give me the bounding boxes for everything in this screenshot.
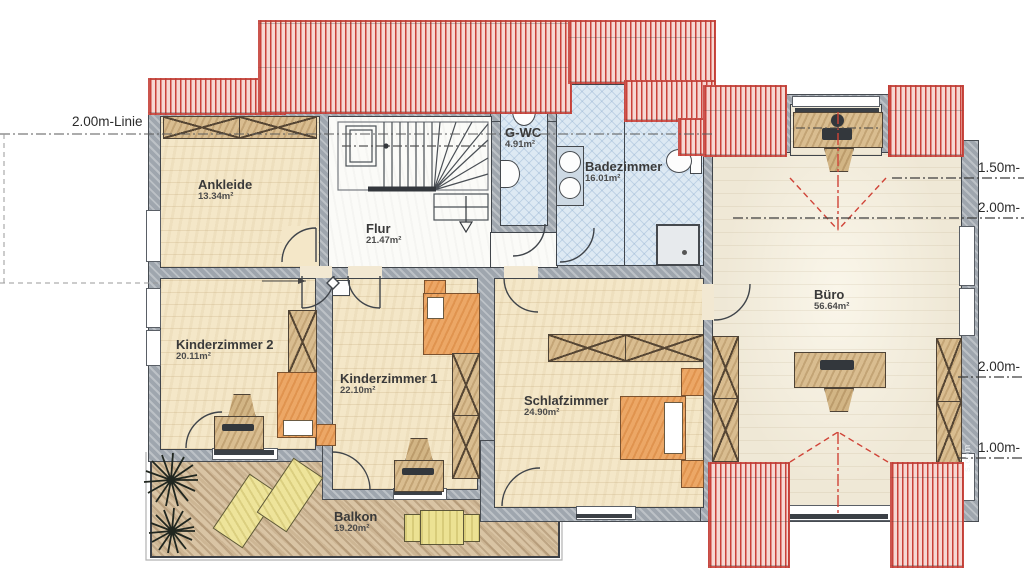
room-area: 20.11m² — [176, 352, 274, 362]
desk-buero-center — [794, 352, 886, 388]
room-buero — [712, 152, 962, 507]
room-name: Badezimmer — [585, 160, 662, 174]
computer-kinderzimmer2 — [222, 424, 254, 431]
window-buero-east-b — [959, 288, 975, 336]
roof-hatch-buero-nw — [703, 85, 787, 157]
room-label-kinderzimmer2: Kinderzimmer 2 20.11m² — [176, 338, 274, 362]
room-area: 22.10m² — [340, 386, 438, 396]
room-area: 4.91m² — [505, 140, 541, 150]
room-label-kinderzimmer1: Kinderzimmer 1 22.10m² — [340, 372, 438, 396]
wardrobe-schlafzimmer-b — [625, 334, 704, 362]
roof-hatch-north-center — [258, 20, 572, 114]
door-gap-buero — [702, 284, 714, 320]
window-dormer — [792, 96, 880, 107]
dimension-label-100m: 1.00m- — [978, 440, 1024, 455]
room-label-balkon: Balkon 19.20m² — [334, 510, 377, 534]
room-name: Kinderzimmer 1 — [340, 372, 438, 386]
computer-buero-dormer — [822, 128, 852, 140]
sink-badezimmer-b — [559, 177, 581, 199]
door-gap-kinderzimmer2 — [300, 266, 332, 278]
room-label-gwc: G-WC 4.91m² — [505, 126, 541, 150]
room-flur — [328, 116, 492, 268]
desk-kinderzimmer2 — [214, 416, 264, 450]
door-gap-ankleide — [282, 226, 318, 266]
window-kinderzimmer2-b — [146, 330, 161, 366]
room-name: G-WC — [505, 126, 541, 140]
floorplan-canvas: Ankleide 13.34m² Flur 21.47m² G-WC 4.91m… — [0, 0, 1024, 588]
room-area: 19.20m² — [334, 524, 377, 534]
watermark-text: s.com — [962, 444, 973, 472]
room-area: 13.34m² — [198, 192, 252, 202]
sill-kinderzimmer2 — [214, 450, 274, 455]
desk-kinderzimmer1 — [394, 460, 444, 492]
wardrobe-kinderzimmer1-b — [452, 415, 480, 479]
side-table-kinderzimmer2 — [316, 424, 336, 446]
lamp-buero-dormer — [831, 114, 844, 127]
balcony-chair-right — [463, 514, 480, 542]
balcony-table — [420, 510, 464, 545]
sink-badezimmer-a — [559, 151, 581, 173]
dimension-label-150m: 1.50m- — [978, 160, 1024, 175]
roof-hatch-buero-se — [890, 462, 964, 568]
window-ankleide — [146, 210, 161, 262]
room-area: 16.01m² — [585, 174, 662, 184]
window-buero-east-a — [959, 226, 975, 286]
room-name: Ankleide — [198, 178, 252, 192]
nightstand-schlafzimmer-a — [681, 368, 704, 396]
bed-pillow-kinderzimmer1 — [427, 297, 444, 319]
wardrobe-schlafzimmer-a — [548, 334, 627, 362]
balcony-chair-left — [404, 514, 421, 542]
room-label-flur: Flur 21.47m² — [366, 222, 401, 246]
wardrobe-ankleide-b — [239, 116, 317, 139]
room-label-ankleide: Ankleide 13.34m² — [198, 178, 252, 202]
dimension-label-left: 2.00m-Linie — [72, 114, 143, 129]
wardrobe-kinderzimmer2 — [288, 310, 317, 374]
door-gap-kinderzimmer1 — [348, 266, 382, 278]
room-name: Flur — [366, 222, 401, 236]
room-area: 56.64m² — [814, 302, 849, 312]
dimension-label-200m-b: 2.00m- — [978, 359, 1024, 374]
door-gap-schlafzimmer — [504, 266, 538, 278]
wardrobe-buero-east-b — [936, 401, 962, 466]
wardrobe-ankleide-a — [163, 116, 241, 139]
room-name: Balkon — [334, 510, 377, 524]
room-label-badezimmer: Badezimmer 16.01m² — [585, 160, 662, 184]
computer-buero-center — [820, 360, 854, 370]
sill-buero-south — [788, 514, 888, 519]
wardrobe-buero-west-b — [712, 398, 739, 462]
room-name: Kinderzimmer 2 — [176, 338, 274, 352]
room-flur-corridor — [490, 232, 558, 268]
nightstand-schlafzimmer-b — [681, 460, 704, 488]
room-name: Schlafzimmer — [524, 394, 609, 408]
roof-hatch-buero-sw — [708, 462, 790, 568]
window-kinderzimmer2-a — [146, 288, 161, 328]
shower-drain — [682, 250, 687, 255]
wardrobe-kinderzimmer1-a — [452, 353, 480, 417]
room-area: 21.47m² — [366, 236, 401, 246]
shelf-kinderzimmer1 — [332, 280, 350, 296]
room-label-buero: Büro 56.64m² — [814, 288, 849, 312]
dimension-label-200m-a: 2.00m- — [978, 200, 1024, 215]
room-name: Büro — [814, 288, 849, 302]
room-area: 24.90m² — [524, 408, 609, 418]
roof-hatch-north-bath — [568, 20, 716, 84]
sill-schlafzimmer — [576, 514, 632, 518]
computer-kinderzimmer1 — [402, 468, 434, 475]
bed-pillows-schlafzimmer — [664, 402, 683, 454]
room-label-schlafzimmer: Schlafzimmer 24.90m² — [524, 394, 609, 418]
wardrobe-buero-west-a — [712, 336, 739, 400]
bed-pillow-kinderzimmer2 — [283, 420, 313, 436]
wardrobe-buero-east-a — [936, 338, 962, 403]
shower-badezimmer — [656, 224, 700, 266]
roof-hatch-buero-ne — [888, 85, 964, 157]
